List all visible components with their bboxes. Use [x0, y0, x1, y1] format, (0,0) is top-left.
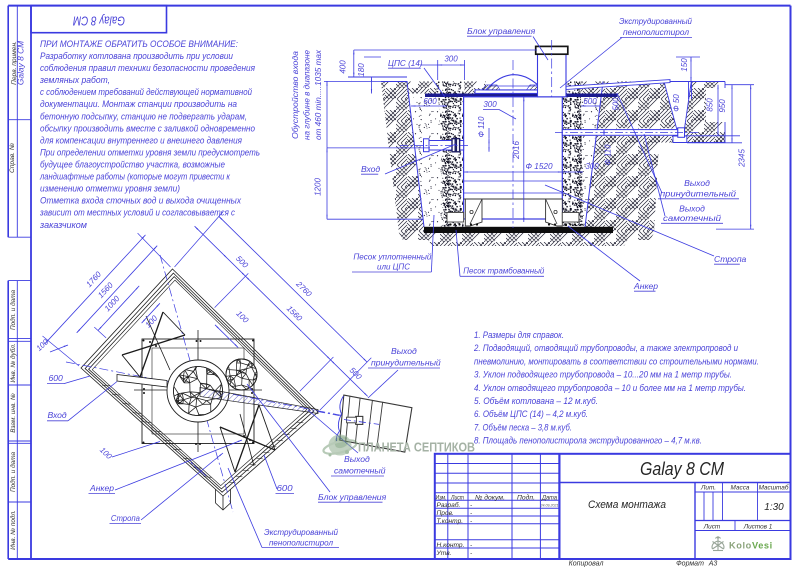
- svg-text:Дата: Дата: [541, 494, 557, 501]
- svg-text:Н.контр.: Н.контр.: [437, 542, 465, 549]
- svg-text:24.09.2021: 24.09.2021: [540, 504, 559, 508]
- svg-text:Стропа: Стропа: [714, 254, 747, 264]
- svg-text:Выход: Выход: [344, 454, 370, 464]
- svg-text:1:30: 1:30: [764, 502, 784, 513]
- svg-text:950: 950: [718, 99, 727, 113]
- svg-text:заказчиком: заказчиком: [39, 220, 87, 230]
- svg-text:принудительный: принудительный: [371, 358, 441, 368]
- svg-text:самотечный: самотечный: [334, 466, 386, 476]
- svg-text:пневмолинию, монтировать в соо: пневмолинию, монтировать в соответствии …: [474, 356, 759, 366]
- svg-text:300: 300: [444, 55, 458, 64]
- svg-text:600: 600: [423, 97, 437, 106]
- svg-text:400: 400: [339, 60, 348, 74]
- svg-text:Т.контр.: Т.контр.: [437, 518, 464, 525]
- svg-text:бетонную подсыпку, станцию не: бетонную подсыпку, станцию не подвергать…: [40, 111, 247, 121]
- svg-text:Подп.: Подп.: [517, 493, 535, 501]
- svg-text:Утв.: Утв.: [436, 550, 452, 557]
- svg-text:Вход: Вход: [361, 164, 380, 174]
- svg-text:Песок уплотненный: Песок уплотненный: [353, 252, 431, 262]
- svg-text:Блок управления: Блок управления: [318, 492, 387, 502]
- svg-text:500: 500: [612, 97, 621, 111]
- svg-text:ЦПС (14): ЦПС (14): [388, 59, 423, 68]
- svg-text:Инв. № подл.: Инв. № подл.: [9, 510, 17, 550]
- svg-text:5. Объём котлована – 12 м.куб.: 5. Объём котлована – 12 м.куб.: [474, 396, 598, 406]
- svg-text:ландшафтные работы (которые мо: ландшафтные работы (которые могут привес…: [39, 172, 231, 182]
- svg-text:A3: A3: [708, 561, 718, 568]
- svg-text:Масса: Масса: [731, 485, 750, 492]
- svg-text:Galay 8 CM: Galay 8 CM: [73, 14, 125, 28]
- svg-text:Разработку котлована производи: Разработку котлована производить при усл…: [40, 51, 233, 61]
- svg-text:Схема монтажа: Схема монтажа: [588, 499, 666, 511]
- svg-text:2345: 2345: [737, 149, 746, 168]
- svg-text:Galay 8 CM: Galay 8 CM: [16, 41, 26, 85]
- svg-text:Пров.: Пров.: [437, 510, 455, 517]
- svg-text:соблюдения правил техники безо: соблюдения правил техники безопасности п…: [40, 63, 255, 73]
- svg-text:Ф 1520: Ф 1520: [526, 162, 553, 171]
- svg-text:самотечный: самотечный: [663, 213, 721, 223]
- svg-text:300: 300: [585, 162, 599, 171]
- svg-text:от 460 min.....1035 max: от 460 min.....1035 max: [314, 49, 323, 140]
- svg-text:принудительный: принудительный: [660, 189, 736, 199]
- svg-text:600: 600: [583, 97, 597, 106]
- svg-text:600: 600: [277, 483, 293, 493]
- svg-text:Обустройство входа: Обустройство входа: [291, 50, 300, 139]
- svg-text:180: 180: [357, 63, 366, 77]
- svg-text:4. Уклон отводящего трубопрово: 4. Уклон отводящего трубопровода – 10 и …: [474, 383, 746, 393]
- svg-text:Ф 110: Ф 110: [604, 144, 613, 165]
- svg-text:изменению отметки уровня земли: изменению отметки уровня земли): [40, 184, 180, 194]
- svg-text:ПЛАНЕТА СЕПТИКОВ: ПЛАНЕТА СЕПТИКОВ: [358, 440, 475, 455]
- svg-text:или ЦПС: или ЦПС: [377, 262, 411, 272]
- svg-text:Стропа: Стропа: [111, 513, 140, 523]
- svg-text:Ф 50: Ф 50: [672, 94, 681, 112]
- svg-text:с соблюдением требований дейст: с соблюдением требований действующей нор…: [40, 87, 252, 97]
- svg-text:пенополистирол: пенополистирол: [269, 538, 333, 548]
- svg-text:7. Объём песка – 3,8 м.куб.: 7. Объём песка – 3,8 м.куб.: [474, 422, 572, 432]
- svg-text:Экструдированный: Экструдированный: [619, 16, 692, 26]
- svg-text:Взам. инв. №: Взам. инв. №: [10, 393, 17, 433]
- svg-text:Galay 8 CM: Galay 8 CM: [640, 459, 724, 479]
- svg-text:150: 150: [680, 58, 689, 72]
- svg-text:Выход: Выход: [679, 204, 705, 214]
- svg-text:Выход: Выход: [684, 178, 710, 188]
- svg-text:Лист: Лист: [703, 524, 721, 531]
- svg-text:Лист: Лист: [450, 494, 464, 501]
- svg-text:Анкер: Анкер: [633, 281, 658, 291]
- svg-text:Блок управления: Блок управления: [467, 26, 536, 36]
- svg-text:850: 850: [706, 98, 715, 112]
- svg-text:Отметка входа сточных вод и вы: Отметка входа сточных вод и выхода очище…: [40, 196, 242, 206]
- svg-text:Копировал: Копировал: [569, 561, 604, 568]
- svg-text:8. Площадь пенополистирола экс: 8. Площадь пенополистирола экструдирован…: [474, 436, 702, 446]
- svg-text:Подп. и дата: Подп. и дата: [9, 290, 17, 330]
- svg-text:Формат: Формат: [676, 561, 704, 568]
- svg-text:3. Уклон подводящего трубопров: 3. Уклон подводящего трубопровода – 10..…: [474, 370, 732, 380]
- svg-text:Инв. № дубл.: Инв. № дубл.: [9, 343, 17, 382]
- svg-text:земляных работ,: земляных работ,: [39, 75, 110, 85]
- svg-text:При определении отметки уровня: При определении отметки уровня земли пре…: [40, 148, 260, 158]
- svg-text:Экструдированный: Экструдированный: [264, 527, 338, 537]
- svg-text:Изм.: Изм.: [436, 494, 447, 501]
- svg-text:1200: 1200: [314, 178, 323, 196]
- svg-text:для компенсации внутреннего и: для компенсации внутреннего и внешнего д…: [40, 135, 242, 145]
- svg-text:№ докум.: № докум.: [475, 493, 505, 501]
- svg-text:2. Подводящий, отводящий трубо: 2. Подводящий, отводящий трубопроводы, а…: [473, 343, 738, 353]
- svg-text:Vesi: Vesi: [752, 541, 773, 551]
- svg-text:зависит от местных условий и с: зависит от местных условий и согласовыва…: [39, 208, 235, 218]
- svg-text:Листов 1: Листов 1: [743, 524, 773, 531]
- svg-text:пенополистирол: пенополистирол: [623, 27, 689, 37]
- svg-text:Анкер: Анкер: [89, 483, 114, 493]
- svg-text:обсыпку производить вместе с з: обсыпку производить вместе с заливкой од…: [40, 123, 255, 133]
- svg-text:300: 300: [483, 100, 497, 109]
- svg-text:Справ. №: Справ. №: [9, 143, 16, 173]
- svg-text:Песок трамбованный: Песок трамбованный: [463, 266, 544, 276]
- svg-text:будущее благоустройство участк: будущее благоустройство участка, возможн…: [40, 160, 225, 170]
- svg-text:600: 600: [49, 373, 64, 383]
- svg-text:Масштаб: Масштаб: [759, 484, 789, 492]
- svg-text:1. Размеры для справок.: 1. Размеры для справок.: [474, 330, 564, 340]
- svg-text:2016: 2016: [512, 141, 521, 160]
- svg-text:Выход: Выход: [391, 346, 417, 356]
- svg-text:Kolo: Kolo: [729, 541, 752, 551]
- svg-text:Лит.: Лит.: [700, 485, 716, 492]
- svg-text:Разраб.: Разраб.: [437, 501, 461, 509]
- svg-text:на глубине в диапазоне: на глубине в диапазоне: [303, 49, 312, 140]
- svg-text:документации. Монтаж станции п: документации. Монтаж станции производить…: [40, 99, 237, 109]
- svg-text:6. Объём ЦПС (14) – 4,2 м.куб.: 6. Объём ЦПС (14) – 4,2 м.куб.: [474, 409, 588, 419]
- svg-text:Вход: Вход: [48, 410, 67, 420]
- svg-text:Подп. и дата: Подп. и дата: [9, 452, 17, 492]
- svg-text:ПРИ МОНТАЖЕ ОБРАТИТЬ ОСОБОЕ ВН: ПРИ МОНТАЖЕ ОБРАТИТЬ ОСОБОЕ ВНИМАНИЕ:: [40, 39, 238, 49]
- svg-text:Ф 110: Ф 110: [477, 116, 486, 137]
